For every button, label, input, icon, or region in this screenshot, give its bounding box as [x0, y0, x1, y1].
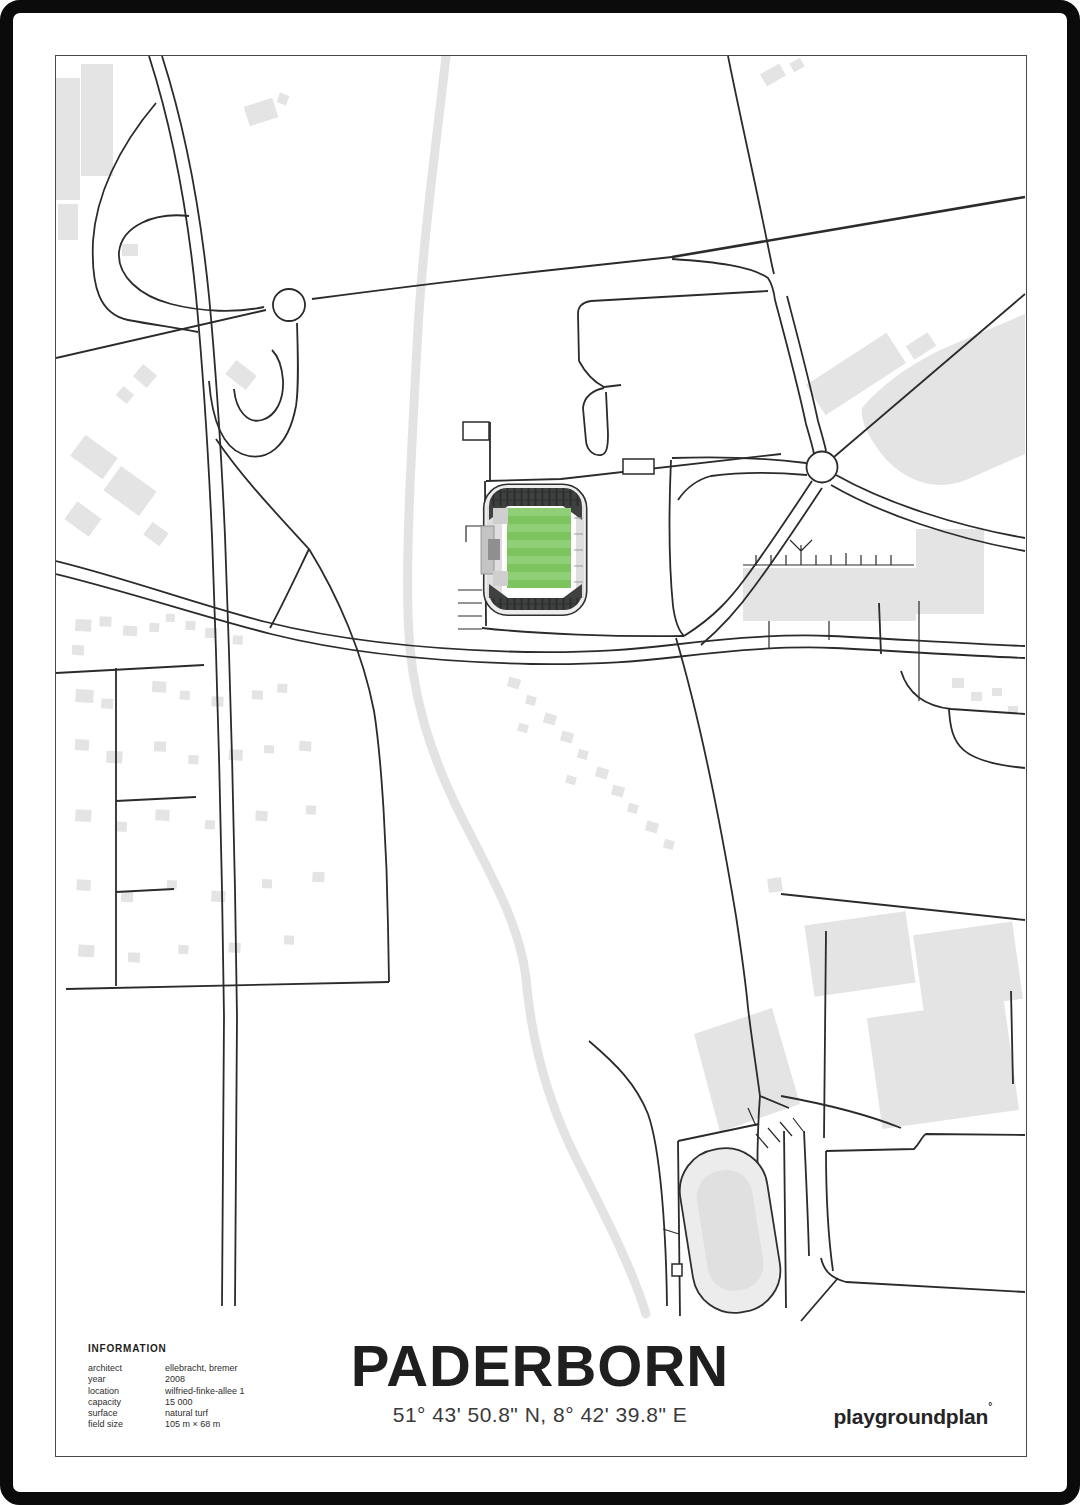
stadium-pitch [507, 508, 571, 588]
brand-logo: playgroundplan° [833, 1401, 992, 1429]
map-area [55, 55, 1027, 1457]
roads [56, 56, 1025, 1321]
houses [56, 609, 338, 972]
running-track [674, 1142, 787, 1319]
page-title: PADERBORN [55, 1335, 1025, 1397]
river [408, 56, 646, 1314]
brand-degree-mark: ° [988, 1401, 992, 1412]
stadium-poster: INFORMATION architect ellebracht, bremer… [0, 0, 1080, 1505]
roundabout-west [273, 289, 305, 321]
roundabout-east [807, 452, 838, 483]
stadium [481, 484, 587, 615]
motorway [149, 56, 224, 1306]
houses-southeast [507, 677, 1018, 851]
map-svg [56, 56, 1026, 1456]
